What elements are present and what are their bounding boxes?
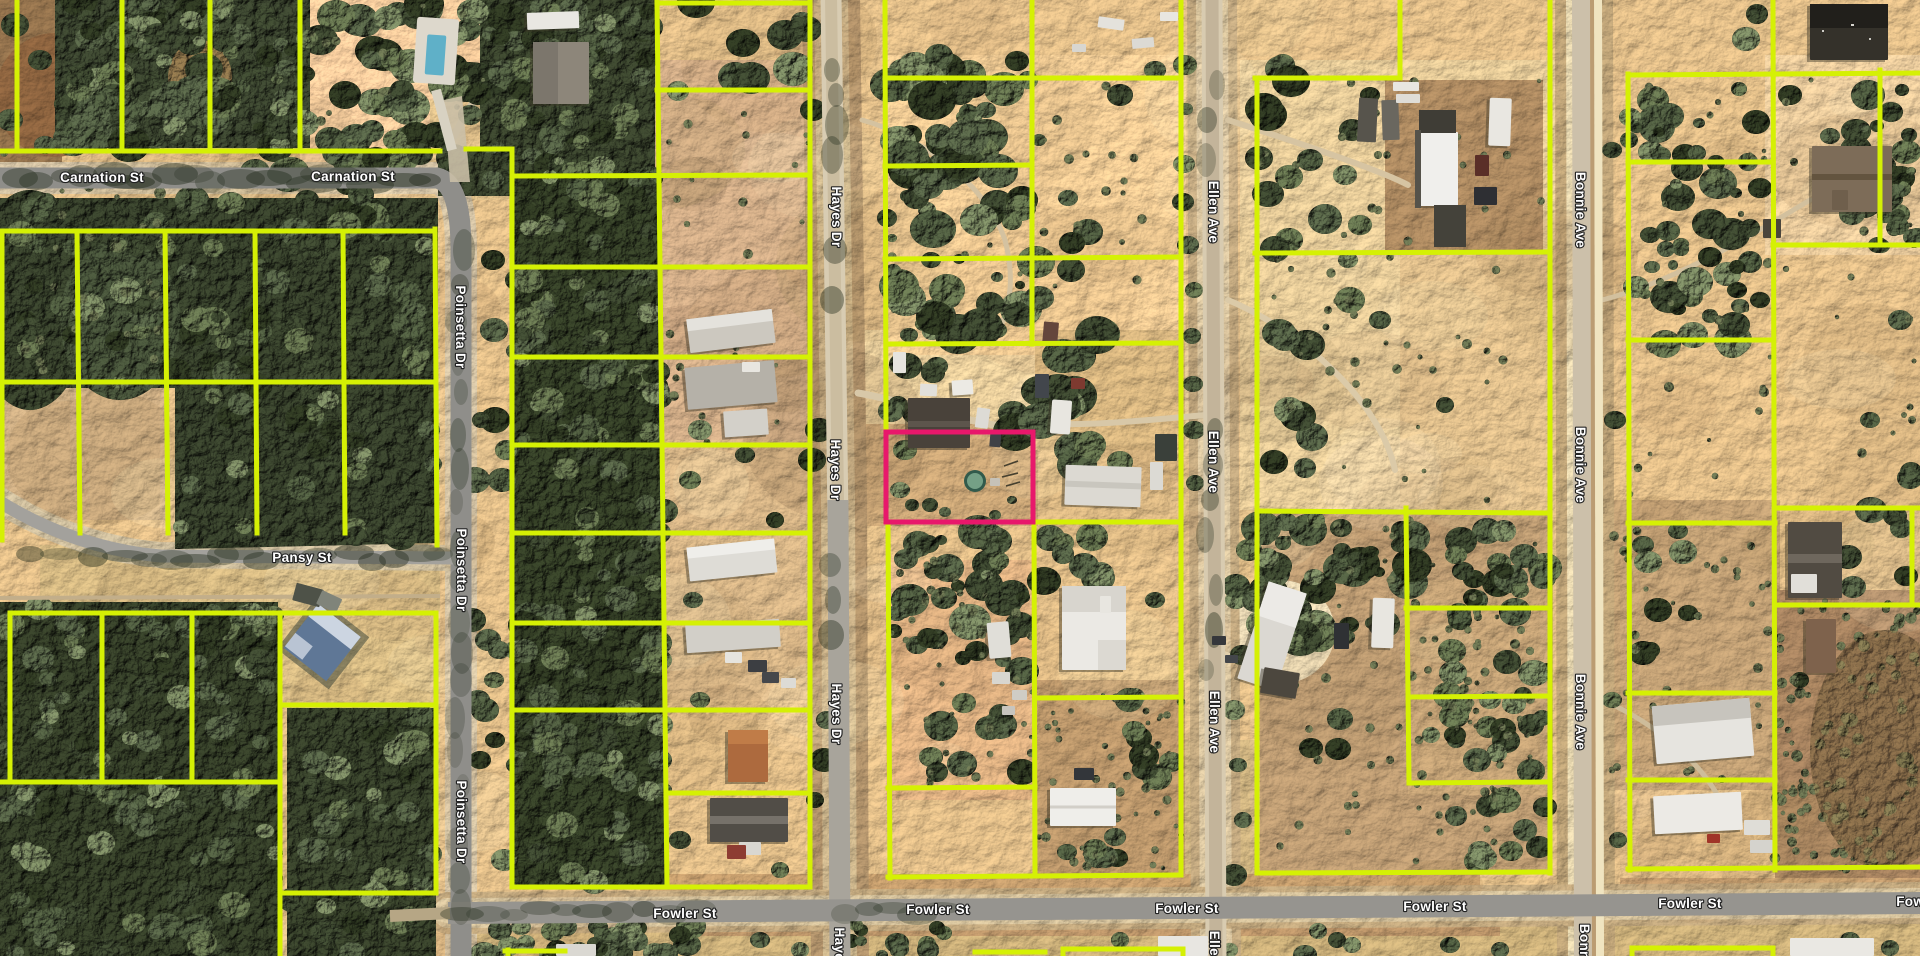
svg-text:Hayes Dr: Hayes Dr <box>829 187 844 248</box>
svg-text:Ellen Ave: Ellen Ave <box>1206 431 1221 494</box>
svg-text:Ellen Ave: Ellen Ave <box>1207 931 1222 956</box>
svg-text:Bonnie Ave: Bonnie Ave <box>1577 924 1592 956</box>
svg-text:Fowler St: Fowler St <box>1155 901 1219 916</box>
svg-text:Ellen Ave: Ellen Ave <box>1206 181 1221 244</box>
svg-text:Fowler St: Fowler St <box>1658 896 1722 911</box>
svg-text:Hayes Dr: Hayes Dr <box>828 440 843 501</box>
svg-text:Bonnie Ave: Bonnie Ave <box>1573 674 1588 750</box>
svg-text:Carnation St: Carnation St <box>311 169 395 184</box>
svg-text:Fowler St: Fowler St <box>653 906 717 921</box>
svg-text:Pansy St: Pansy St <box>272 550 332 565</box>
svg-text:Bonnie Ave: Bonnie Ave <box>1573 172 1588 248</box>
svg-text:Hayes Dr: Hayes Dr <box>832 928 847 956</box>
svg-text:Poinsetta Dr: Poinsetta Dr <box>454 528 469 612</box>
svg-text:Poinsetta Dr: Poinsetta Dr <box>453 285 468 369</box>
svg-text:Fowler St: Fowler St <box>1896 894 1920 909</box>
svg-text:Fowler St: Fowler St <box>906 902 970 917</box>
svg-text:Poinsetta Dr: Poinsetta Dr <box>454 780 469 864</box>
svg-text:Bonnie Ave: Bonnie Ave <box>1573 427 1588 503</box>
svg-text:Fowler St: Fowler St <box>1403 899 1467 914</box>
svg-text:Ellen Ave: Ellen Ave <box>1207 691 1222 754</box>
svg-text:Carnation St: Carnation St <box>60 170 144 185</box>
svg-text:Hayes Dr: Hayes Dr <box>829 684 844 745</box>
